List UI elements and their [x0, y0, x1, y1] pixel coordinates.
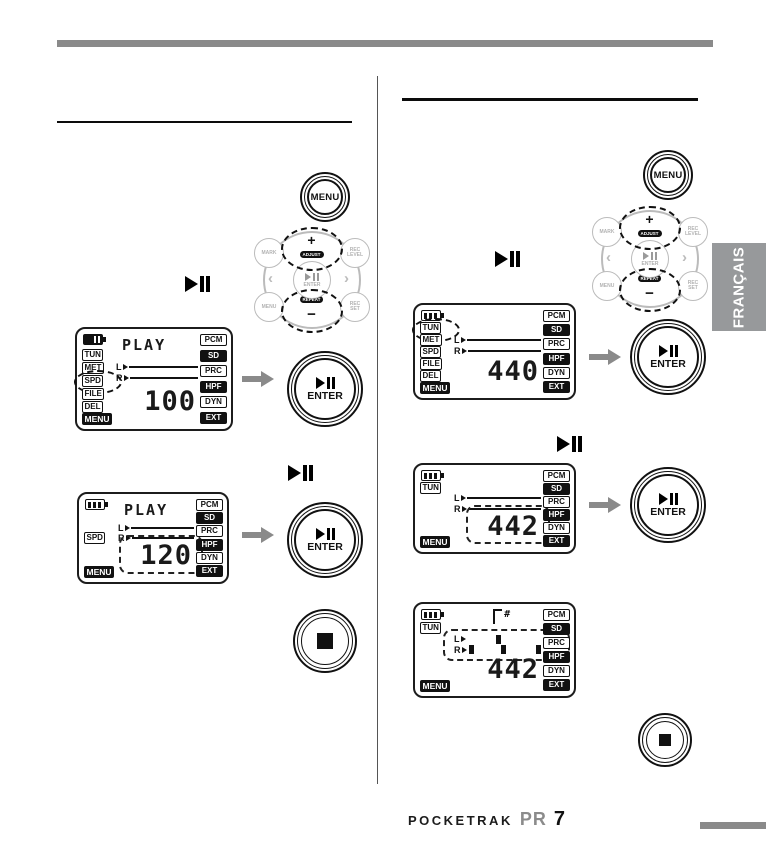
- lcd-right-icons: PCMSDPRCHPFDYNEXT: [543, 310, 570, 393]
- lcd-left-icons: TUNMETSPDFILEDELMENU: [420, 309, 451, 394]
- arrow-icon: [589, 497, 621, 513]
- channel-row-l: L: [118, 523, 194, 533]
- channel-row-r: R: [454, 346, 541, 356]
- lcd-icon-sd: SD: [543, 483, 570, 495]
- model-digit: 7: [554, 808, 565, 831]
- lcd-icon-spd: SPD: [82, 375, 103, 387]
- lcd-icon-met: MET: [420, 334, 442, 346]
- model-name: PR: [520, 809, 547, 830]
- lcd-icon-dyn: DYN: [196, 552, 223, 564]
- play-pause-icon: [185, 276, 210, 292]
- lcd-title: PLAY: [124, 501, 194, 519]
- lcd-icon-menu: MENU: [82, 413, 112, 425]
- dpad-corner-mark: MARK: [592, 217, 622, 247]
- lcd-screen-tuner-meter: TUNMENU#LR442PCMSDPRCHPFDYNEXT: [413, 602, 576, 698]
- manual-page: MENU MARKREC LEVELMENUREC SET+ADJUST−REP…: [0, 0, 766, 850]
- channel-row-l: L: [454, 335, 541, 345]
- lcd-value: 100: [144, 389, 196, 414]
- dpad-plus-highlight: [281, 227, 343, 271]
- dpad-minus-highlight: [281, 289, 343, 333]
- lcd-icon-pcm: PCM: [543, 609, 570, 621]
- lcd-left-icons: TUNMENU: [420, 469, 451, 548]
- lcd-icon-tun: TUN: [420, 622, 441, 634]
- stop-square-icon: [317, 633, 333, 649]
- lcd-left-icons: TUNMETSPDFILEDELMENU: [82, 333, 113, 425]
- meter-line: [467, 339, 542, 341]
- dpad-right-button: ›: [344, 270, 349, 287]
- play-pause-icon: [659, 493, 678, 505]
- lcd-title: PLAY: [122, 336, 198, 354]
- level-arrow-icon: [462, 348, 467, 354]
- lcd-icon-dyn: DYN: [543, 367, 570, 379]
- channel-row-r: R: [116, 373, 198, 383]
- menu-button: MENU: [643, 150, 693, 200]
- lcd-left-icons: SPDMENU: [84, 498, 115, 578]
- lcd-icon-file: FILE: [420, 358, 442, 370]
- channel-label-l: L: [118, 523, 124, 533]
- column-divider: [377, 76, 378, 784]
- value-highlight: [466, 505, 550, 544]
- lcd-icon-del: DEL: [420, 370, 441, 382]
- dpad-left-button: ‹: [268, 270, 273, 287]
- dpad-corner-menu: MENU: [592, 271, 622, 301]
- value-highlight: [119, 535, 203, 574]
- lcd-icon-pcm: PCM: [543, 470, 570, 482]
- lcd-right-icons: PCMSDPRCHPFDYNEXT: [200, 334, 227, 424]
- lcd-icon-hpf: HPF: [543, 509, 570, 521]
- menu-button-label: MENU: [311, 192, 340, 203]
- lcd-icon-spd: SPD: [420, 346, 441, 358]
- lcd-icon-menu: MENU: [420, 382, 450, 394]
- battery-icon: [83, 334, 107, 346]
- lcd-icon-menu: MENU: [420, 680, 450, 692]
- lcd-icon-prc: PRC: [200, 365, 227, 377]
- channel-row-l: L: [454, 493, 541, 503]
- tuner-note-indicator: #: [493, 609, 510, 624]
- lcd-icon-prc: PRC: [543, 496, 570, 508]
- lcd-icon-pcm: PCM: [200, 334, 227, 346]
- lcd-icon-dyn: DYN: [543, 665, 570, 677]
- lcd-icon-hpf: HPF: [196, 539, 223, 551]
- lcd-center: LR440: [454, 309, 541, 394]
- stop-button: [293, 609, 357, 673]
- channel-label-r: R: [454, 504, 461, 514]
- level-arrow-icon: [125, 525, 130, 531]
- channel-label-r: R: [116, 373, 123, 383]
- lcd-icon-prc: PRC: [196, 525, 223, 537]
- play-pause-icon: [316, 528, 335, 540]
- channel-label-l: L: [454, 493, 460, 503]
- lcd-screen-play-120: SPDMENUPLAYLR120PCMSDPRCHPFDYNEXT: [77, 492, 229, 584]
- lcd-center: LR442: [454, 469, 541, 548]
- channel-label-l: L: [454, 335, 460, 345]
- right-section-rule: [402, 98, 698, 101]
- channel-label-l: L: [116, 362, 122, 372]
- lcd-screen-play-100: TUNMETSPDFILEDELMENUPLAYLR100PCMSDPRCHPF…: [75, 327, 233, 431]
- lcd-icon-sd: SD: [196, 512, 223, 524]
- lcd-icon-pcm: PCM: [543, 310, 570, 322]
- lcd-icon-sd: SD: [543, 324, 570, 336]
- sharp-sign: #: [504, 609, 510, 620]
- battery-icon: [421, 609, 445, 620]
- dpad-right-button: ›: [682, 249, 687, 266]
- arrow-icon: [242, 371, 274, 387]
- lcd-right-icons: PCMSDPRCHPFDYNEXT: [196, 499, 223, 577]
- play-pause-icon: [305, 273, 319, 281]
- lcd-icon-file: FILE: [82, 388, 104, 400]
- lcd-icon-ext: EXT: [543, 679, 570, 691]
- dpad-corner-rec-level: REC LEVEL: [678, 217, 708, 247]
- arrow-icon: [242, 527, 274, 543]
- dpad: MARKREC LEVELMENUREC SET+ADJUST−REPEAT‹›…: [254, 223, 369, 335]
- level-arrow-icon: [123, 364, 128, 370]
- level-arrow-icon: [124, 375, 129, 381]
- enter-button: ENTER: [287, 351, 363, 427]
- dpad-corner-rec-level: REC LEVEL: [340, 238, 370, 268]
- lcd-icon-ext: EXT: [543, 535, 570, 547]
- lcd-right-icons: PCMSDPRCHPFDYNEXT: [543, 470, 570, 547]
- level-arrow-icon: [461, 337, 466, 343]
- lcd-icon-hpf: HPF: [543, 353, 570, 365]
- note-glyph: [493, 609, 502, 624]
- play-pause-icon: [316, 377, 335, 389]
- lcd-icon-dyn: DYN: [200, 396, 227, 408]
- battery-icon: [85, 499, 109, 509]
- enter-button: ENTER: [287, 502, 363, 578]
- lcd-value: 442: [487, 657, 539, 682]
- lcd-screen-tuner-440: TUNMETSPDFILEDELMENULR440PCMSDPRCHPFDYNE…: [413, 303, 576, 400]
- meter-line: [131, 527, 195, 529]
- lcd-icon-del: DEL: [82, 401, 103, 413]
- lcd-icon-ext: EXT: [196, 565, 223, 577]
- lcd-icon-menu: MENU: [84, 566, 114, 578]
- enter-button: ENTER: [630, 319, 706, 395]
- top-bar: [57, 40, 713, 47]
- channel-label-r: R: [454, 346, 461, 356]
- meter-line: [467, 497, 542, 499]
- lcd-value: 440: [487, 359, 539, 384]
- menu-button-face: MENU: [307, 179, 343, 215]
- dpad-minus-highlight: [619, 268, 681, 312]
- lcd-icon-sd: SD: [543, 623, 570, 635]
- meter-line: [130, 377, 199, 379]
- dpad-corner-rec-set: REC SET: [678, 271, 708, 301]
- channel-row-l: L: [116, 362, 198, 372]
- lcd-right-icons: PCMSDPRCHPFDYNEXT: [543, 609, 570, 691]
- play-pause-icon: [288, 465, 313, 481]
- lcd-icon-hpf: HPF: [543, 651, 570, 663]
- lcd-icon-ext: EXT: [543, 381, 570, 393]
- play-pause-icon: [557, 436, 582, 452]
- play-triangle-icon: [185, 276, 198, 292]
- dpad-plus-highlight: [619, 206, 681, 250]
- lcd-icon-prc: PRC: [543, 338, 570, 350]
- dpad-corner-rec-set: REC SET: [340, 292, 370, 322]
- menu-button-ring: MENU: [304, 176, 346, 218]
- lcd-icon-menu: MENU: [420, 536, 450, 548]
- meter-line: [468, 350, 542, 352]
- dpad-enter-label: ENTER: [642, 261, 659, 267]
- enter-button-label: ENTER: [307, 390, 343, 402]
- dpad-left-button: ‹: [606, 249, 611, 266]
- brand-logo: POCKETRAK PR 7: [408, 808, 565, 831]
- lcd-icon-tun: TUN: [420, 482, 441, 494]
- left-section-rule: [57, 121, 352, 123]
- enter-button-label: ENTER: [650, 358, 686, 370]
- lcd-center: #LR442: [454, 608, 541, 692]
- lcd-icon-ext: EXT: [200, 412, 227, 424]
- level-arrow-icon: [461, 495, 466, 501]
- play-pause-icon: [495, 251, 520, 267]
- dpad: MARKREC LEVELMENUREC SET+ADJUST−REPEAT‹›…: [592, 202, 707, 314]
- language-tab-francais: FRANÇAIS: [712, 243, 766, 331]
- enter-button: ENTER: [630, 467, 706, 543]
- lcd-center: PLAYLR100: [116, 333, 198, 425]
- menu-button-label: MENU: [654, 170, 683, 181]
- lcd-icon-hpf: HPF: [200, 381, 227, 393]
- enter-button-label: ENTER: [650, 506, 686, 518]
- lcd-icon-sd: SD: [200, 350, 227, 362]
- lcd-icon-tun: TUN: [82, 349, 103, 361]
- footer-bar: [700, 822, 766, 829]
- stop-square-icon: [659, 734, 671, 746]
- stop-button: [638, 713, 692, 767]
- lcd-icon-dyn: DYN: [543, 522, 570, 534]
- language-tab-label: FRANÇAIS: [731, 246, 748, 328]
- enter-button-label: ENTER: [307, 541, 343, 553]
- dpad-enter-label: ENTER: [304, 282, 321, 288]
- play-pause-icon: [643, 252, 657, 260]
- brand-name: POCKETRAK: [408, 813, 513, 828]
- battery-icon: [421, 470, 445, 480]
- lcd-icon-tun: TUN: [420, 322, 441, 334]
- lcd-screen-tuner-442: TUNMENULR442PCMSDPRCHPFDYNEXT: [413, 463, 576, 554]
- meter-line: [129, 366, 199, 368]
- dpad-corner-menu: MENU: [254, 292, 284, 322]
- lcd-icon-prc: PRC: [543, 637, 570, 649]
- dpad-corner-mark: MARK: [254, 238, 284, 268]
- lcd-icon-pcm: PCM: [196, 499, 223, 511]
- arrow-icon: [589, 349, 621, 365]
- lcd-icon-spd: SPD: [84, 532, 105, 544]
- menu-button: MENU: [300, 172, 350, 222]
- play-pause-icon: [659, 345, 678, 357]
- lcd-center: PLAYLR120: [118, 498, 194, 578]
